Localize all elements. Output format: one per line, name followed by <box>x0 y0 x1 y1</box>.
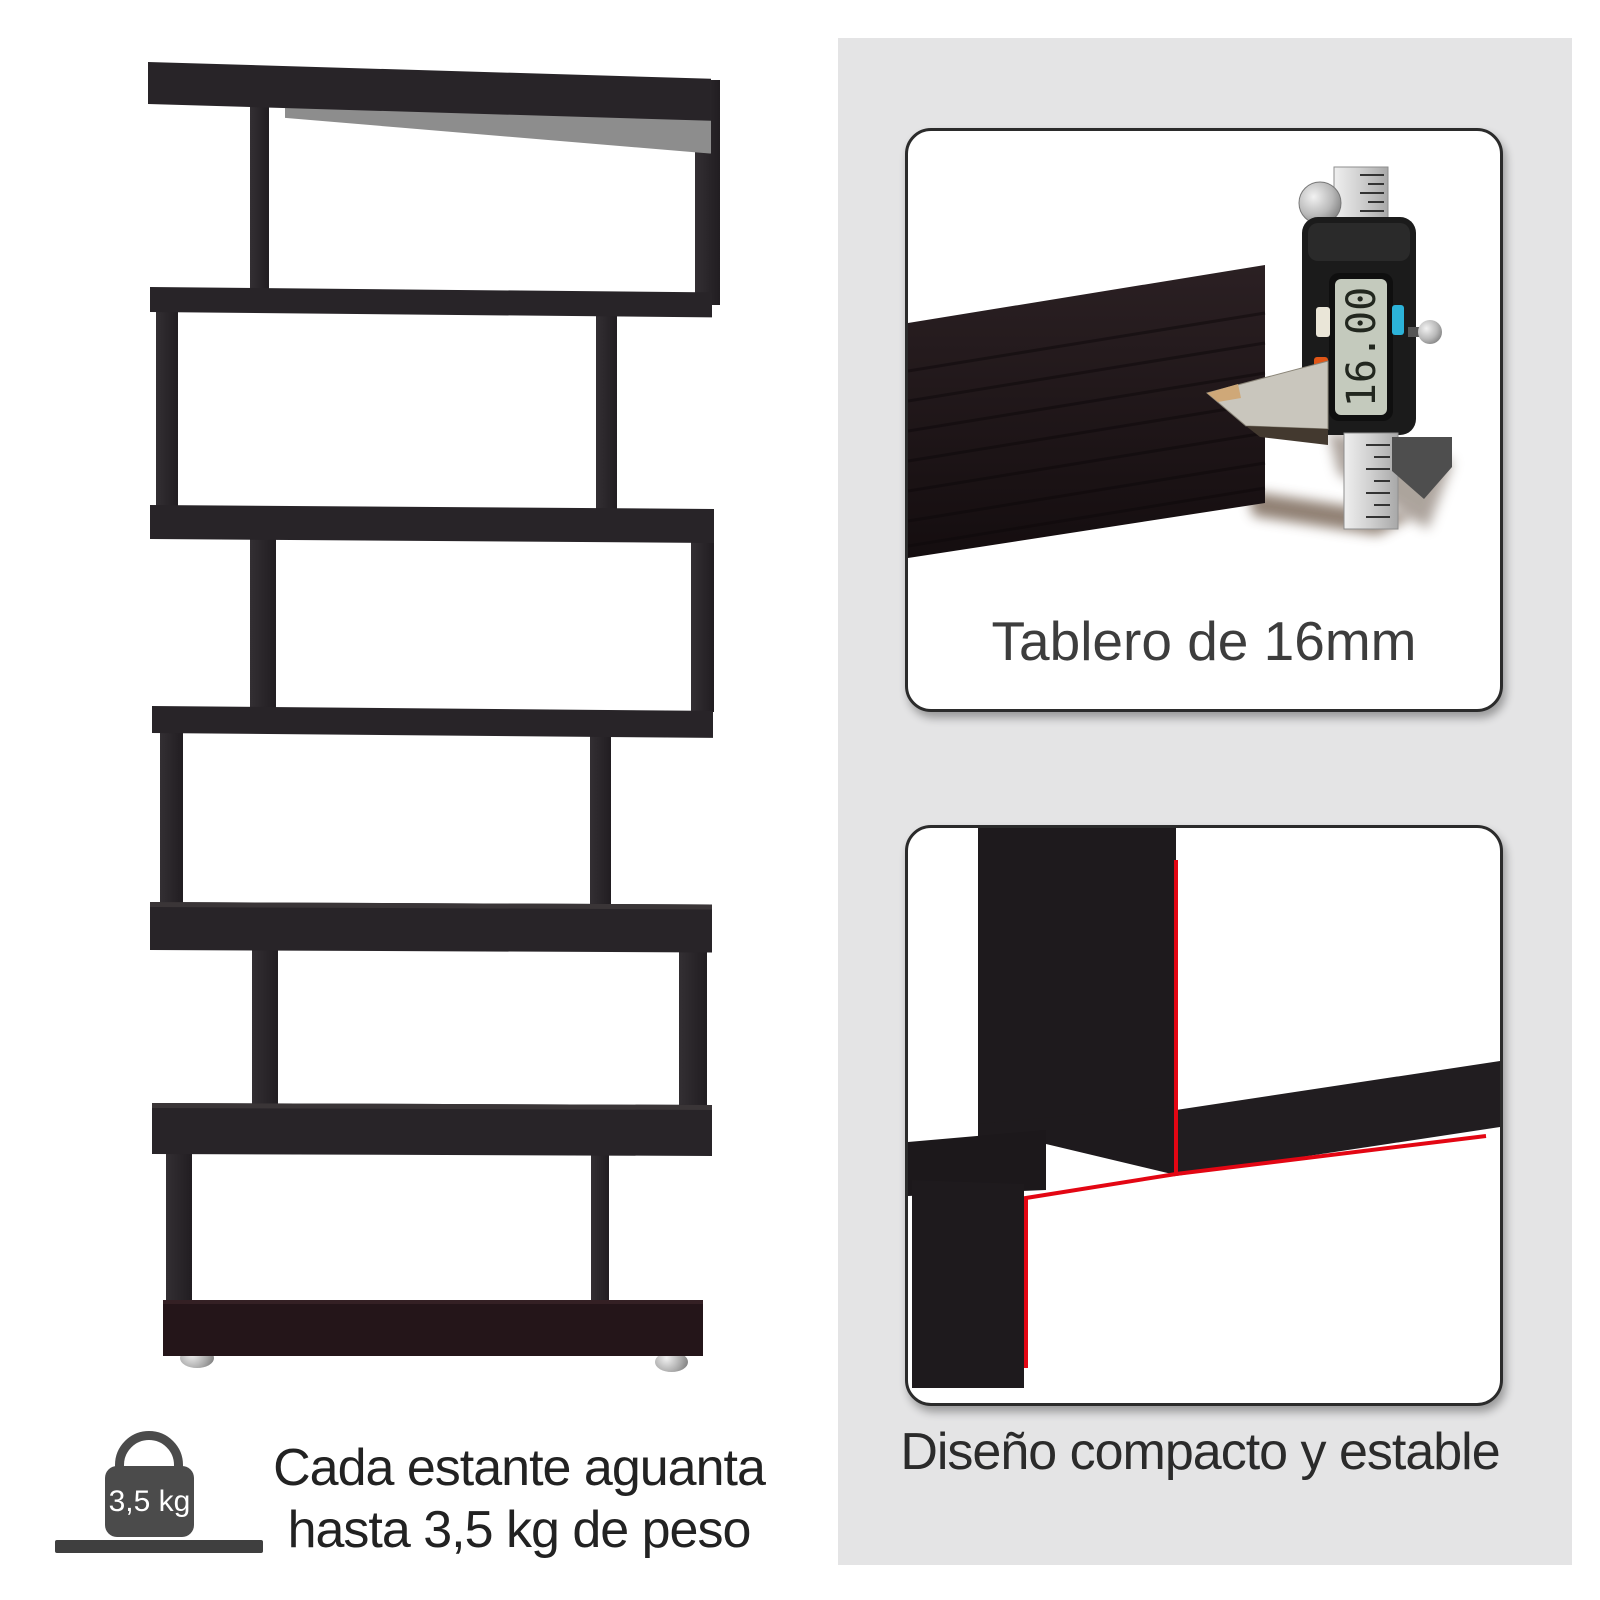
shelf-divider-tier6-right <box>591 1146 609 1304</box>
shelf-divider-tier5-left <box>252 934 278 1112</box>
weight-bag-handle-icon <box>115 1431 183 1469</box>
shelf-side-panel-tier3-right <box>691 518 714 712</box>
joint-vertical-panel <box>978 828 1176 1138</box>
weight-bag-icon: 3,5 kg <box>105 1466 194 1537</box>
capacity-note: 3,5 kg Cada estante aguanta hasta 3,5 kg… <box>40 1420 820 1580</box>
capacity-text: Cada estante aguanta hasta 3,5 kg de pes… <box>239 1437 799 1561</box>
capacity-line-2: hasta 3,5 kg de peso <box>239 1499 799 1561</box>
shelf-board-6 <box>152 1103 712 1156</box>
shelf-joint-closeup-photo <box>908 828 1500 1403</box>
shelf-divider-tier4-right <box>590 728 611 908</box>
caliper-button-blue <box>1392 305 1404 335</box>
capacity-line-1: Cada estante aguanta <box>239 1437 799 1499</box>
shelf-side-panel-tier5-right <box>679 938 707 1112</box>
shelf-side-panel-tier6-left <box>166 1144 192 1306</box>
shelf-side-panel-tier4-left <box>160 724 183 909</box>
caliper-reading: 16.00 <box>1339 287 1385 407</box>
shelf-board-3 <box>150 505 714 543</box>
s-shape-bookshelf-photo <box>0 0 800 1400</box>
shelf-board-2 <box>150 287 712 317</box>
shelf-board-4 <box>152 706 713 738</box>
top-card-caption: Tablero de 16mm <box>908 609 1500 673</box>
shelf-divider-tier1-left <box>250 78 269 303</box>
feature-card-stability <box>905 825 1503 1406</box>
bottom-card-caption: Diseño compacto y estable <box>808 1422 1592 1482</box>
shelf-divider-tier2-right <box>596 303 617 513</box>
feature-card-board-thickness: 16.00 Tablero de 16mm <box>905 128 1503 712</box>
caliper-knob <box>1418 320 1442 344</box>
caliper-button-white <box>1316 307 1330 337</box>
shelf-side-panel-tier2-left <box>156 300 178 512</box>
bag-handle-arc-icon <box>115 1431 183 1469</box>
product-infographic: 3,5 kg Cada estante aguanta hasta 3,5 kg… <box>0 0 1600 1600</box>
shelf-base-board <box>163 1300 703 1356</box>
shelf-board-5 <box>150 902 712 952</box>
joint-horizontal-board <box>1176 1061 1500 1176</box>
red-outline-left <box>1026 1174 1176 1368</box>
shelf-board-1 <box>148 62 711 121</box>
shelf-divider-tier3-left <box>250 528 276 714</box>
shelf-line-icon <box>55 1540 263 1553</box>
joint-left-leg <box>912 1180 1024 1388</box>
bag-weight-label: 3,5 kg <box>109 1485 191 1519</box>
